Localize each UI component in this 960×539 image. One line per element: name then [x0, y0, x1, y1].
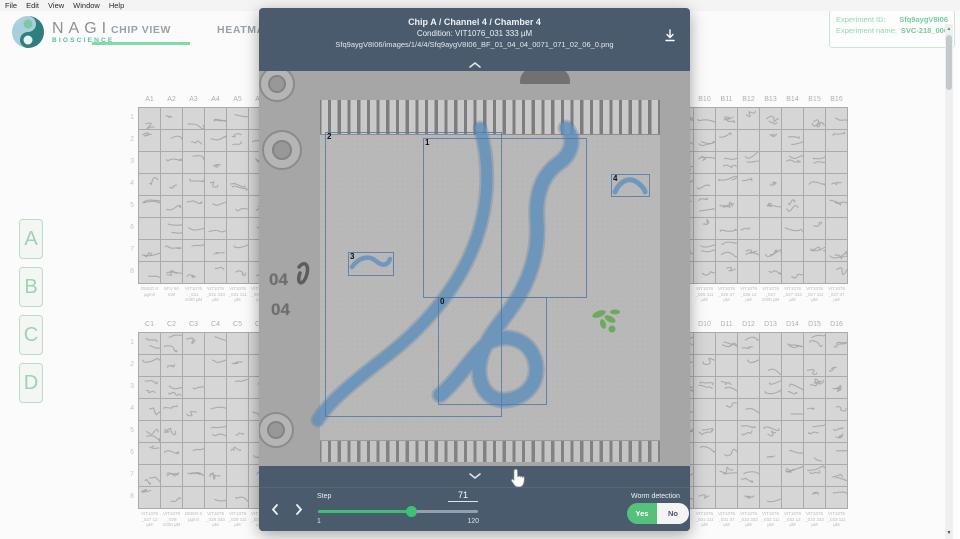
- scrollbar-up-icon[interactable]: ▲: [945, 24, 953, 34]
- chamber-cell-d12-7[interactable]: [738, 465, 759, 486]
- chamber-cell-d13-6[interactable]: [760, 443, 781, 464]
- chamber-cell-d12-6[interactable]: [738, 443, 759, 464]
- chamber-detail-modal: Chip A / Channel 4 / Chamber 4 Condition…: [259, 8, 690, 531]
- chamber-cell-a5-6[interactable]: [227, 218, 248, 239]
- chamber-cell-a1-4[interactable]: [139, 174, 160, 195]
- worm-detection-yes-button[interactable]: Yes: [627, 503, 657, 524]
- worm-thumbnail: [694, 174, 715, 195]
- chamber-cell-c2-7[interactable]: [161, 465, 182, 486]
- column-header-b14: B14: [782, 94, 803, 106]
- chamber-cell-c3-7[interactable]: [183, 465, 204, 486]
- chamber-cell-b14-3[interactable]: [782, 152, 803, 173]
- chamber-cell-b15-1[interactable]: [804, 108, 825, 129]
- chamber-cell-a4-5[interactable]: [205, 196, 226, 217]
- chamber-cell-b16-4[interactable]: [826, 174, 847, 195]
- chamber-cell-d12-1[interactable]: [738, 333, 759, 354]
- chamber-cell-d15-3[interactable]: [804, 377, 825, 398]
- chamber-cell-b14-2[interactable]: [782, 130, 803, 151]
- worm-thumbnail: [782, 333, 803, 354]
- chamber-cell-d14-4[interactable]: [782, 399, 803, 420]
- chamber-cell-c3-1[interactable]: [183, 333, 204, 354]
- chamber-cell-d11-5[interactable]: [716, 421, 737, 442]
- chamber-cell-b11-7[interactable]: [716, 240, 737, 261]
- worm-thumbnail: [183, 465, 204, 486]
- modal-condition: Condition: VIT1076_031 333 µM: [259, 28, 690, 39]
- chamber-cell-d14-1[interactable]: [782, 333, 803, 354]
- chamber-cell-a3-2[interactable]: [183, 130, 204, 151]
- chamber-cell-b14-4[interactable]: [782, 174, 803, 195]
- worm-thumbnail: [804, 377, 825, 398]
- chamber-cell-d14-3[interactable]: [782, 377, 803, 398]
- chamber-cell-b13-5[interactable]: [760, 196, 781, 217]
- chamber-cell-b16-3[interactable]: [826, 152, 847, 173]
- experiment-info-box: Experiment ID: Sfq9aygV8I06 Experiment n…: [829, 10, 955, 48]
- chamber-cell-c5-8[interactable]: [227, 487, 248, 508]
- chamber-cell-d16-1[interactable]: [826, 333, 847, 354]
- chamber-cell-a2-5[interactable]: [161, 196, 182, 217]
- chamber-cell-d10-6[interactable]: [694, 443, 715, 464]
- chamber-cell-a3-1[interactable]: [183, 108, 204, 129]
- worm-thumbnail: [205, 130, 226, 151]
- worm-thumbnail: [205, 487, 226, 508]
- worm-thumbnail: [227, 196, 248, 217]
- chamber-cell-d13-3[interactable]: [760, 377, 781, 398]
- chamber-cell-b12-4[interactable]: [738, 174, 759, 195]
- chamber-cell-d15-2[interactable]: [804, 355, 825, 376]
- chamber-cell-d13-5[interactable]: [760, 421, 781, 442]
- step-input[interactable]: [448, 490, 478, 502]
- chamber-cell-d16-7[interactable]: [826, 465, 847, 486]
- chip-button-c[interactable]: C: [19, 315, 43, 355]
- chamber-cell-b13-3[interactable]: [760, 152, 781, 173]
- chamber-cell-d15-5[interactable]: [804, 421, 825, 442]
- chamber-cell-c1-2[interactable]: [139, 355, 160, 376]
- chamber-cell-a4-1[interactable]: [205, 108, 226, 129]
- active-tab-underline: [92, 42, 190, 45]
- chamber-cell-a5-4[interactable]: [227, 174, 248, 195]
- chamber-cell-b11-5[interactable]: [716, 196, 737, 217]
- row-label-5: 5: [120, 420, 134, 442]
- chamber-cell-b15-7[interactable]: [804, 240, 825, 261]
- chamber-cell-c4-5[interactable]: [205, 421, 226, 442]
- chamber-cell-b12-7[interactable]: [738, 240, 759, 261]
- chamber-cell-d12-8[interactable]: [738, 487, 759, 508]
- condition-label: VIT1076 _031 333 µM: [205, 286, 226, 303]
- chamber-cell-d11-8[interactable]: [716, 487, 737, 508]
- scrollbar-thumb[interactable]: [946, 35, 952, 90]
- chamber-cell-d16-8[interactable]: [826, 487, 847, 508]
- worm-thumbnail: [760, 108, 781, 129]
- worm-thumbnail: [804, 218, 825, 239]
- condition-label: VIT1076 _032 111 µM: [760, 511, 781, 528]
- chamber-cell-c3-8[interactable]: [183, 487, 204, 508]
- chamber-cell-a3-5[interactable]: [183, 196, 204, 217]
- worm-thumbnail: [760, 487, 781, 508]
- column-header-d16: D16: [826, 319, 847, 331]
- column-header-c3: C3: [183, 319, 204, 331]
- chamber-cell-c3-4[interactable]: [183, 399, 204, 420]
- chamber-cell-b13-4[interactable]: [760, 174, 781, 195]
- chamber-cell-b10-7[interactable]: [694, 240, 715, 261]
- next-step-button[interactable]: [295, 503, 304, 516]
- worm-thumbnail: [161, 262, 182, 283]
- condition-label: VIT1079 _028 111 µM: [227, 511, 248, 528]
- chamber-cell-c1-3[interactable]: [139, 377, 160, 398]
- step-label: Step: [317, 493, 331, 500]
- chamber-cell-a4-6[interactable]: [205, 218, 226, 239]
- chamber-cell-d15-1[interactable]: [804, 333, 825, 354]
- row-label-5: 5: [120, 195, 134, 217]
- chamber-cell-b13-7[interactable]: [760, 240, 781, 261]
- chamber-cell-b15-5[interactable]: [804, 196, 825, 217]
- chamber-cell-b11-1[interactable]: [716, 108, 737, 129]
- chamber-cell-d11-1[interactable]: [716, 333, 737, 354]
- chamber-cell-c1-5[interactable]: [139, 421, 160, 442]
- chamber-cell-b10-4[interactable]: [694, 174, 715, 195]
- condition-label: DMSO 0 µg/ml: [183, 511, 204, 528]
- chamber-cell-d13-7[interactable]: [760, 465, 781, 486]
- chamber-cell-a2-1[interactable]: [161, 108, 182, 129]
- chamber-cell-c1-4[interactable]: [139, 399, 160, 420]
- chamber-cell-b16-2[interactable]: [826, 130, 847, 151]
- chamber-cell-a2-3[interactable]: [161, 152, 182, 173]
- chamber-cell-b10-2[interactable]: [694, 130, 715, 151]
- chamber-cell-b12-6[interactable]: [738, 218, 759, 239]
- worm-thumbnail: [205, 421, 226, 442]
- menu-window[interactable]: Window: [73, 1, 100, 10]
- page-scrollbar[interactable]: ▲ ▼: [945, 24, 953, 539]
- chamber-cell-c5-1[interactable]: [227, 333, 248, 354]
- chamber-cell-b16-7[interactable]: [826, 240, 847, 261]
- chamber-cell-b15-4[interactable]: [804, 174, 825, 195]
- chamber-cell-b15-8[interactable]: [804, 262, 825, 283]
- detection-box-4[interactable]: 4: [611, 174, 650, 197]
- chamber-cell-c4-3[interactable]: [205, 377, 226, 398]
- chamber-cell-c3-3[interactable]: [183, 377, 204, 398]
- worm-thumbnail: [782, 130, 803, 151]
- scrollbar-down-icon[interactable]: ▼: [945, 528, 953, 538]
- chamber-cell-a2-4[interactable]: [161, 174, 182, 195]
- chamber-cell-d10-8[interactable]: [694, 487, 715, 508]
- chamber-cell-a1-7[interactable]: [139, 240, 160, 261]
- chamber-cell-b10-1[interactable]: [694, 108, 715, 129]
- worm-thumbnail: [826, 196, 847, 217]
- chamber-cell-b14-1[interactable]: [782, 108, 803, 129]
- worm-thumbnail: [738, 240, 759, 261]
- chamber-cell-c3-5[interactable]: [183, 421, 204, 442]
- chamber-cell-c2-4[interactable]: [161, 399, 182, 420]
- worm-thumbnail: [826, 377, 847, 398]
- worm-detection-no-button[interactable]: No: [657, 503, 689, 524]
- chamber-cell-a2-7[interactable]: [161, 240, 182, 261]
- chamber-cell-a5-7[interactable]: [227, 240, 248, 261]
- chamber-cell-d13-4[interactable]: [760, 399, 781, 420]
- chamber-cell-b13-8[interactable]: [760, 262, 781, 283]
- worm-thumbnail: [760, 240, 781, 261]
- worm-thumbnail: [826, 174, 847, 195]
- step-slider-thumb[interactable]: [406, 506, 417, 517]
- chamber-cell-d13-8[interactable]: [760, 487, 781, 508]
- chamber-cell-b15-3[interactable]: [804, 152, 825, 173]
- chamber-cell-d16-2[interactable]: [826, 355, 847, 376]
- chamber-cell-b10-6[interactable]: [694, 218, 715, 239]
- worm-thumbnail: [738, 399, 759, 420]
- chamber-cell-d12-2[interactable]: [738, 355, 759, 376]
- chamber-cell-c3-2[interactable]: [183, 355, 204, 376]
- condition-label: 5FU 50 mM: [161, 286, 182, 303]
- chamber-cell-d11-6[interactable]: [716, 443, 737, 464]
- worm-thumbnail: [183, 240, 204, 261]
- chamber-cell-d15-6[interactable]: [804, 443, 825, 464]
- chamber-cell-a1-1[interactable]: [139, 108, 160, 129]
- worm-thumbnail: [804, 355, 825, 376]
- chamber-cell-b13-2[interactable]: [760, 130, 781, 151]
- step-range-min: 1: [317, 518, 321, 525]
- chamber-cell-c2-8[interactable]: [161, 487, 182, 508]
- chamber-cell-d10-2[interactable]: [694, 355, 715, 376]
- worm-thumbnail: [694, 218, 715, 239]
- worm-thumbnail: [760, 262, 781, 283]
- chamber-cell-d11-3[interactable]: [716, 377, 737, 398]
- chamber-cell-a4-2[interactable]: [205, 130, 226, 151]
- chamber-cell-b16-5[interactable]: [826, 196, 847, 217]
- chamber-cell-c1-6[interactable]: [139, 443, 160, 464]
- chamber-cell-d10-7[interactable]: [694, 465, 715, 486]
- worm-thumbnail: [183, 196, 204, 217]
- chamber-cell-a1-2[interactable]: [139, 130, 160, 151]
- chamber-cell-b11-4[interactable]: [716, 174, 737, 195]
- chamber-cell-d10-1[interactable]: [694, 333, 715, 354]
- chamber-cell-c5-2[interactable]: [227, 355, 248, 376]
- chamber-cell-d14-5[interactable]: [782, 421, 803, 442]
- chamber-cell-a1-3[interactable]: [139, 152, 160, 173]
- chamber-cell-a3-4[interactable]: [183, 174, 204, 195]
- condition-label: VIT1076 _025 12 µM: [738, 286, 759, 303]
- chamber-cell-a5-1[interactable]: [227, 108, 248, 129]
- chamber-cell-c4-1[interactable]: [205, 333, 226, 354]
- chamber-cell-b12-2[interactable]: [738, 130, 759, 151]
- chamber-cell-c1-1[interactable]: [139, 333, 160, 354]
- chamber-cell-b15-6[interactable]: [804, 218, 825, 239]
- chamber-cell-c3-6[interactable]: [183, 443, 204, 464]
- chamber-cell-a5-3[interactable]: [227, 152, 248, 173]
- worm-thumbnail: [782, 152, 803, 173]
- chip-button-b[interactable]: B: [19, 267, 43, 307]
- chamber-cell-d14-6[interactable]: [782, 443, 803, 464]
- chamber-cell-d14-2[interactable]: [782, 355, 803, 376]
- row-label-2: 2: [120, 129, 134, 151]
- chamber-cell-b15-2[interactable]: [804, 130, 825, 151]
- chamber-cell-d16-3[interactable]: [826, 377, 847, 398]
- chamber-cell-a5-5[interactable]: [227, 196, 248, 217]
- worm-thumbnail: [139, 355, 160, 376]
- chamber-cell-c1-7[interactable]: [139, 465, 160, 486]
- step-slider[interactable]: [318, 510, 478, 513]
- chamber-cell-a2-6[interactable]: [161, 218, 182, 239]
- worm-thumbnail: [826, 399, 847, 420]
- worm-thumbnail: [760, 196, 781, 217]
- detection-overlay: 01234: [259, 71, 690, 466]
- chamber-cell-b14-8[interactable]: [782, 262, 803, 283]
- worm-detection-toggle: Yes No: [627, 503, 689, 524]
- menu-view[interactable]: View: [48, 1, 64, 10]
- chamber-cell-b13-6[interactable]: [760, 218, 781, 239]
- modal-image-path: Sfq9aygV8I06/images/1/4/4/Sfq9aygV8I06_B…: [259, 39, 690, 50]
- chamber-cell-c2-6[interactable]: [161, 443, 182, 464]
- previous-step-button[interactable]: [270, 503, 279, 516]
- worm-thumbnail: [738, 333, 759, 354]
- chamber-cell-d16-6[interactable]: [826, 443, 847, 464]
- chamber-cell-b12-8[interactable]: [738, 262, 759, 283]
- chamber-cell-d15-4[interactable]: [804, 399, 825, 420]
- worm-thumbnail: [738, 152, 759, 173]
- chamber-cell-c5-7[interactable]: [227, 465, 248, 486]
- worm-thumbnail: [694, 421, 715, 442]
- chamber-cell-a3-8[interactable]: [183, 262, 204, 283]
- worm-thumbnail: [804, 421, 825, 442]
- chamber-cell-a1-8[interactable]: [139, 262, 160, 283]
- worm-thumbnail: [716, 174, 737, 195]
- chamber-cell-b14-5[interactable]: [782, 196, 803, 217]
- chamber-cell-b10-3[interactable]: [694, 152, 715, 173]
- chamber-cell-d11-2[interactable]: [716, 355, 737, 376]
- chamber-cell-a3-6[interactable]: [183, 218, 204, 239]
- chamber-cell-b11-8[interactable]: [716, 262, 737, 283]
- chamber-cell-a4-4[interactable]: [205, 174, 226, 195]
- chamber-microscopy-image[interactable]: 04 04 01234: [259, 71, 690, 466]
- chamber-cell-c5-3[interactable]: [227, 377, 248, 398]
- step-slider-fill: [318, 510, 412, 513]
- worm-thumbnail: [227, 262, 248, 283]
- chamber-cell-b11-2[interactable]: [716, 130, 737, 151]
- chamber-cell-c4-7[interactable]: [205, 465, 226, 486]
- chip-button-d[interactable]: D: [19, 363, 43, 403]
- chamber-cell-d11-4[interactable]: [716, 399, 737, 420]
- chamber-cell-b14-7[interactable]: [782, 240, 803, 261]
- collapse-header-icon[interactable]: [468, 61, 482, 69]
- chamber-cell-b11-3[interactable]: [716, 152, 737, 173]
- chamber-cell-d13-2[interactable]: [760, 355, 781, 376]
- chamber-cell-c4-8[interactable]: [205, 487, 226, 508]
- chamber-cell-c4-2[interactable]: [205, 355, 226, 376]
- worm-thumbnail: [183, 399, 204, 420]
- worm-thumbnail: [161, 443, 182, 464]
- column-header-c2: C2: [161, 319, 182, 331]
- chamber-cell-d10-3[interactable]: [694, 377, 715, 398]
- condition-label: DMSO 0 µg/ml: [139, 286, 160, 303]
- condition-label: VIT1076 _031 111 µM: [227, 286, 248, 303]
- chamber-cell-d10-5[interactable]: [694, 421, 715, 442]
- chip-button-a[interactable]: A: [19, 219, 43, 259]
- chamber-cell-b16-6[interactable]: [826, 218, 847, 239]
- chamber-cell-a4-3[interactable]: [205, 152, 226, 173]
- worm-thumbnail: [716, 443, 737, 464]
- chamber-cell-d15-8[interactable]: [804, 487, 825, 508]
- column-header-c4: C4: [205, 319, 226, 331]
- worm-thumbnail: [139, 377, 160, 398]
- worm-thumbnail: [139, 196, 160, 217]
- chamber-cell-a3-7[interactable]: [183, 240, 204, 261]
- worm-thumbnail: [161, 108, 182, 129]
- worm-thumbnail: [227, 443, 248, 464]
- worm-thumbnail: [826, 333, 847, 354]
- worm-thumbnail: [205, 152, 226, 173]
- chamber-cell-d10-4[interactable]: [694, 399, 715, 420]
- chamber-cell-a5-8[interactable]: [227, 262, 248, 283]
- collapse-footer-icon[interactable]: [468, 472, 482, 480]
- condition-label: VIT1076 _027 37 µM: [826, 286, 847, 303]
- chamber-cell-c1-8[interactable]: [139, 487, 160, 508]
- chamber-cell-a4-7[interactable]: [205, 240, 226, 261]
- worm-thumbnail: [205, 262, 226, 283]
- chamber-cell-b11-6[interactable]: [716, 218, 737, 239]
- worm-thumbnail: [760, 443, 781, 464]
- menu-help[interactable]: Help: [109, 1, 124, 10]
- detection-box-3[interactable]: 3: [348, 252, 394, 276]
- chamber-cell-c4-4[interactable]: [205, 399, 226, 420]
- chamber-cell-d15-7[interactable]: [804, 465, 825, 486]
- worm-thumbnail: [738, 421, 759, 442]
- chamber-cell-d14-8[interactable]: [782, 487, 803, 508]
- chamber-cell-d11-7[interactable]: [716, 465, 737, 486]
- chamber-cell-a1-5[interactable]: [139, 196, 160, 217]
- chamber-cell-b14-6[interactable]: [782, 218, 803, 239]
- chamber-cell-b13-1[interactable]: [760, 108, 781, 129]
- chamber-cell-a2-2[interactable]: [161, 130, 182, 151]
- chamber-cell-c2-1[interactable]: [161, 333, 182, 354]
- chamber-cell-b12-5[interactable]: [738, 196, 759, 217]
- chamber-cell-a5-2[interactable]: [227, 130, 248, 151]
- chamber-cell-c2-2[interactable]: [161, 355, 182, 376]
- nagi-logo-icon: [10, 14, 46, 50]
- chamber-cell-c2-5[interactable]: [161, 421, 182, 442]
- worm-thumbnail: [161, 355, 182, 376]
- chamber-cell-b10-5[interactable]: [694, 196, 715, 217]
- chamber-cell-c4-6[interactable]: [205, 443, 226, 464]
- chamber-cell-c5-4[interactable]: [227, 399, 248, 420]
- chamber-cell-b16-8[interactable]: [826, 262, 847, 283]
- chamber-cell-c5-5[interactable]: [227, 421, 248, 442]
- tab-chip-view[interactable]: CHIP VIEW: [92, 24, 190, 40]
- chamber-cell-a4-8[interactable]: [205, 262, 226, 283]
- row-label-4: 4: [120, 398, 134, 420]
- menu-edit[interactable]: Edit: [26, 1, 39, 10]
- chamber-cell-c5-6[interactable]: [227, 443, 248, 464]
- worm-thumbnail: [826, 355, 847, 376]
- chamber-cell-c2-3[interactable]: [161, 377, 182, 398]
- row-label-6: 6: [120, 217, 134, 239]
- chamber-cell-d12-4[interactable]: [738, 399, 759, 420]
- chamber-cell-a2-8[interactable]: [161, 262, 182, 283]
- chamber-cell-d16-4[interactable]: [826, 399, 847, 420]
- chamber-cell-d16-5[interactable]: [826, 421, 847, 442]
- chamber-cell-b12-1[interactable]: [738, 108, 759, 129]
- condition-label: VIT1076 _027 333 µM: [782, 286, 803, 303]
- menu-file[interactable]: File: [5, 1, 17, 10]
- worm-thumbnail: [227, 130, 248, 151]
- chamber-cell-a1-6[interactable]: [139, 218, 160, 239]
- chamber-cell-d13-1[interactable]: [760, 333, 781, 354]
- chamber-cell-b10-8[interactable]: [694, 262, 715, 283]
- chamber-cell-d12-5[interactable]: [738, 421, 759, 442]
- chamber-cell-a3-3[interactable]: [183, 152, 204, 173]
- worm-thumbnail: [782, 377, 803, 398]
- download-icon[interactable]: [662, 28, 678, 44]
- chamber-cell-d14-7[interactable]: [782, 465, 803, 486]
- chamber-cell-d12-3[interactable]: [738, 377, 759, 398]
- chamber-cell-b12-3[interactable]: [738, 152, 759, 173]
- chamber-cell-b16-1[interactable]: [826, 108, 847, 129]
